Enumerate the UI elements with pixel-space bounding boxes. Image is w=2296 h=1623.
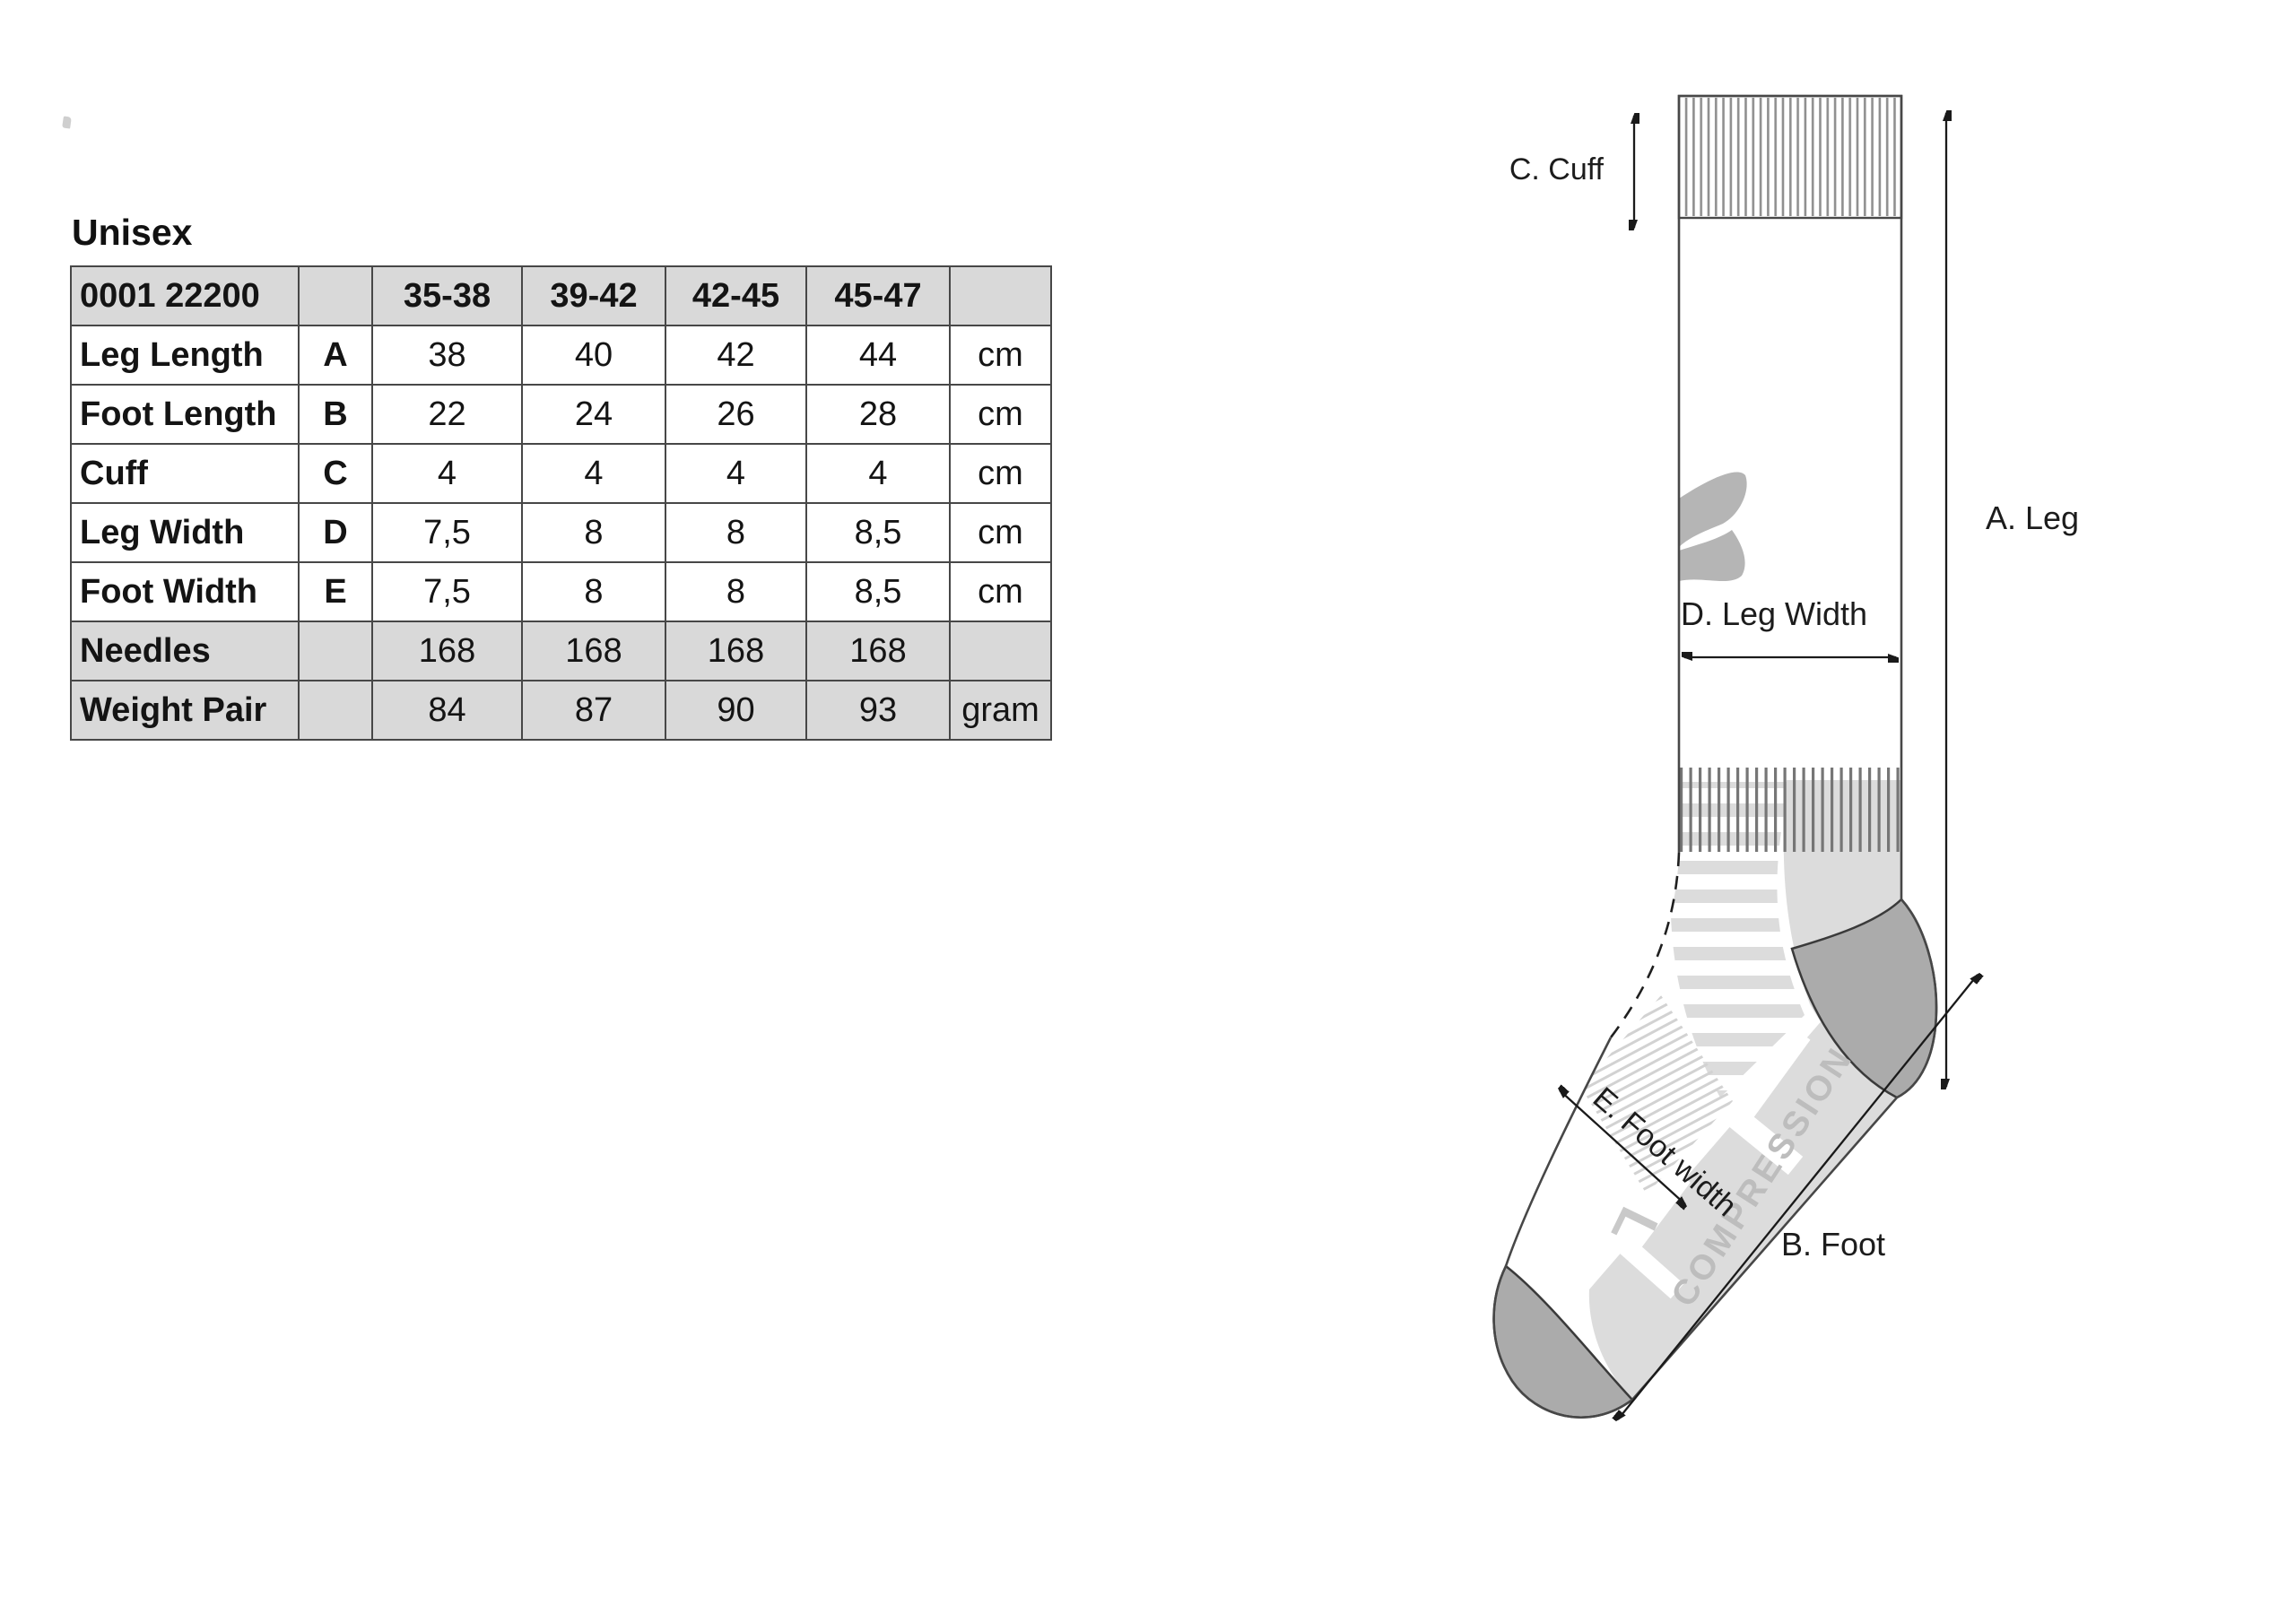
product-code-cell: 0001 22200 [71,266,299,325]
value-cell: 8,5 [806,562,950,621]
value-cell: 84 [372,681,522,740]
value-cell: 168 [665,621,806,681]
size-column-header: 35-38 [372,266,522,325]
dimension-letter-cell: A [299,325,372,385]
value-cell: 168 [522,621,665,681]
value-cell: 4 [665,444,806,503]
size-table: 0001 22200 35-38 39-42 42-45 45-47 Leg L… [70,265,1052,741]
table-row: Foot Width E 7,5 8 8 8,5 cm [71,562,1051,621]
size-column-header: 45-47 [806,266,950,325]
value-cell: 4 [522,444,665,503]
dimension-letter-cell: D [299,503,372,562]
value-cell: 8 [665,562,806,621]
dimension-letter-cell [299,621,372,681]
table-row: Leg Length A 38 40 42 44 cm [71,325,1051,385]
value-cell: 7,5 [372,503,522,562]
table-row: Cuff C 4 4 4 4 cm [71,444,1051,503]
row-label-cell: Foot Length [71,385,299,444]
value-cell: 28 [806,385,950,444]
value-cell: 7,5 [372,562,522,621]
row-label-cell: Leg Width [71,503,299,562]
value-cell: 40 [522,325,665,385]
empty-cell [950,266,1051,325]
value-cell: 42 [665,325,806,385]
value-cell: 26 [665,385,806,444]
empty-cell [299,266,372,325]
ankle-rib-band [1680,768,1900,852]
sock-measurement-diagram: COMPRESSION L C. Cuff A. Leg D. Leg Widt… [1480,72,2108,1480]
value-cell: 8 [522,562,665,621]
value-cell: 4 [806,444,950,503]
unit-cell: gram [950,681,1051,740]
unit-cell: cm [950,385,1051,444]
table-header-row: 0001 22200 35-38 39-42 42-45 45-47 [71,266,1051,325]
value-cell: 90 [665,681,806,740]
table-row: Leg Width D 7,5 8 8 8,5 cm [71,503,1051,562]
size-chart-sheet: { "page": { "title": "Unisex" }, "size_t… [0,0,2296,1623]
unit-cell: cm [950,444,1051,503]
unit-cell: cm [950,325,1051,385]
value-cell: 168 [806,621,950,681]
row-label-cell: Foot Width [71,562,299,621]
dimension-letter-cell: C [299,444,372,503]
erased-logo-remnant [62,116,72,128]
value-cell: 93 [806,681,950,740]
row-label-cell: Weight Pair [71,681,299,740]
foot-label: B. Foot [1781,1226,1885,1263]
size-column-header: 39-42 [522,266,665,325]
dimension-letter-cell: B [299,385,372,444]
unit-cell [950,621,1051,681]
value-cell: 22 [372,385,522,444]
row-label-cell: Leg Length [71,325,299,385]
leg-label: A. Leg [1986,499,2079,536]
value-cell: 4 [372,444,522,503]
value-cell: 38 [372,325,522,385]
leg-width-label: D. Leg Width [1681,595,1867,632]
value-cell: 24 [522,385,665,444]
value-cell: 44 [806,325,950,385]
size-column-header: 42-45 [665,266,806,325]
row-label-cell: Cuff [71,444,299,503]
value-cell: 168 [372,621,522,681]
table-row: Foot Length B 22 24 26 28 cm [71,385,1051,444]
dimension-letter-cell: E [299,562,372,621]
cuff-label: C. Cuff [1509,152,1605,187]
dimension-letter-cell [299,681,372,740]
unit-cell: cm [950,503,1051,562]
table-row: Needles 168 168 168 168 [71,621,1051,681]
row-label-cell: Needles [71,621,299,681]
cuff-rib-section [1679,96,1901,218]
table-row: Weight Pair 84 87 90 93 gram [71,681,1051,740]
value-cell: 87 [522,681,665,740]
value-cell: 8,5 [806,503,950,562]
unit-cell: cm [950,562,1051,621]
value-cell: 8 [522,503,665,562]
table-title: Unisex [72,212,192,254]
value-cell: 8 [665,503,806,562]
